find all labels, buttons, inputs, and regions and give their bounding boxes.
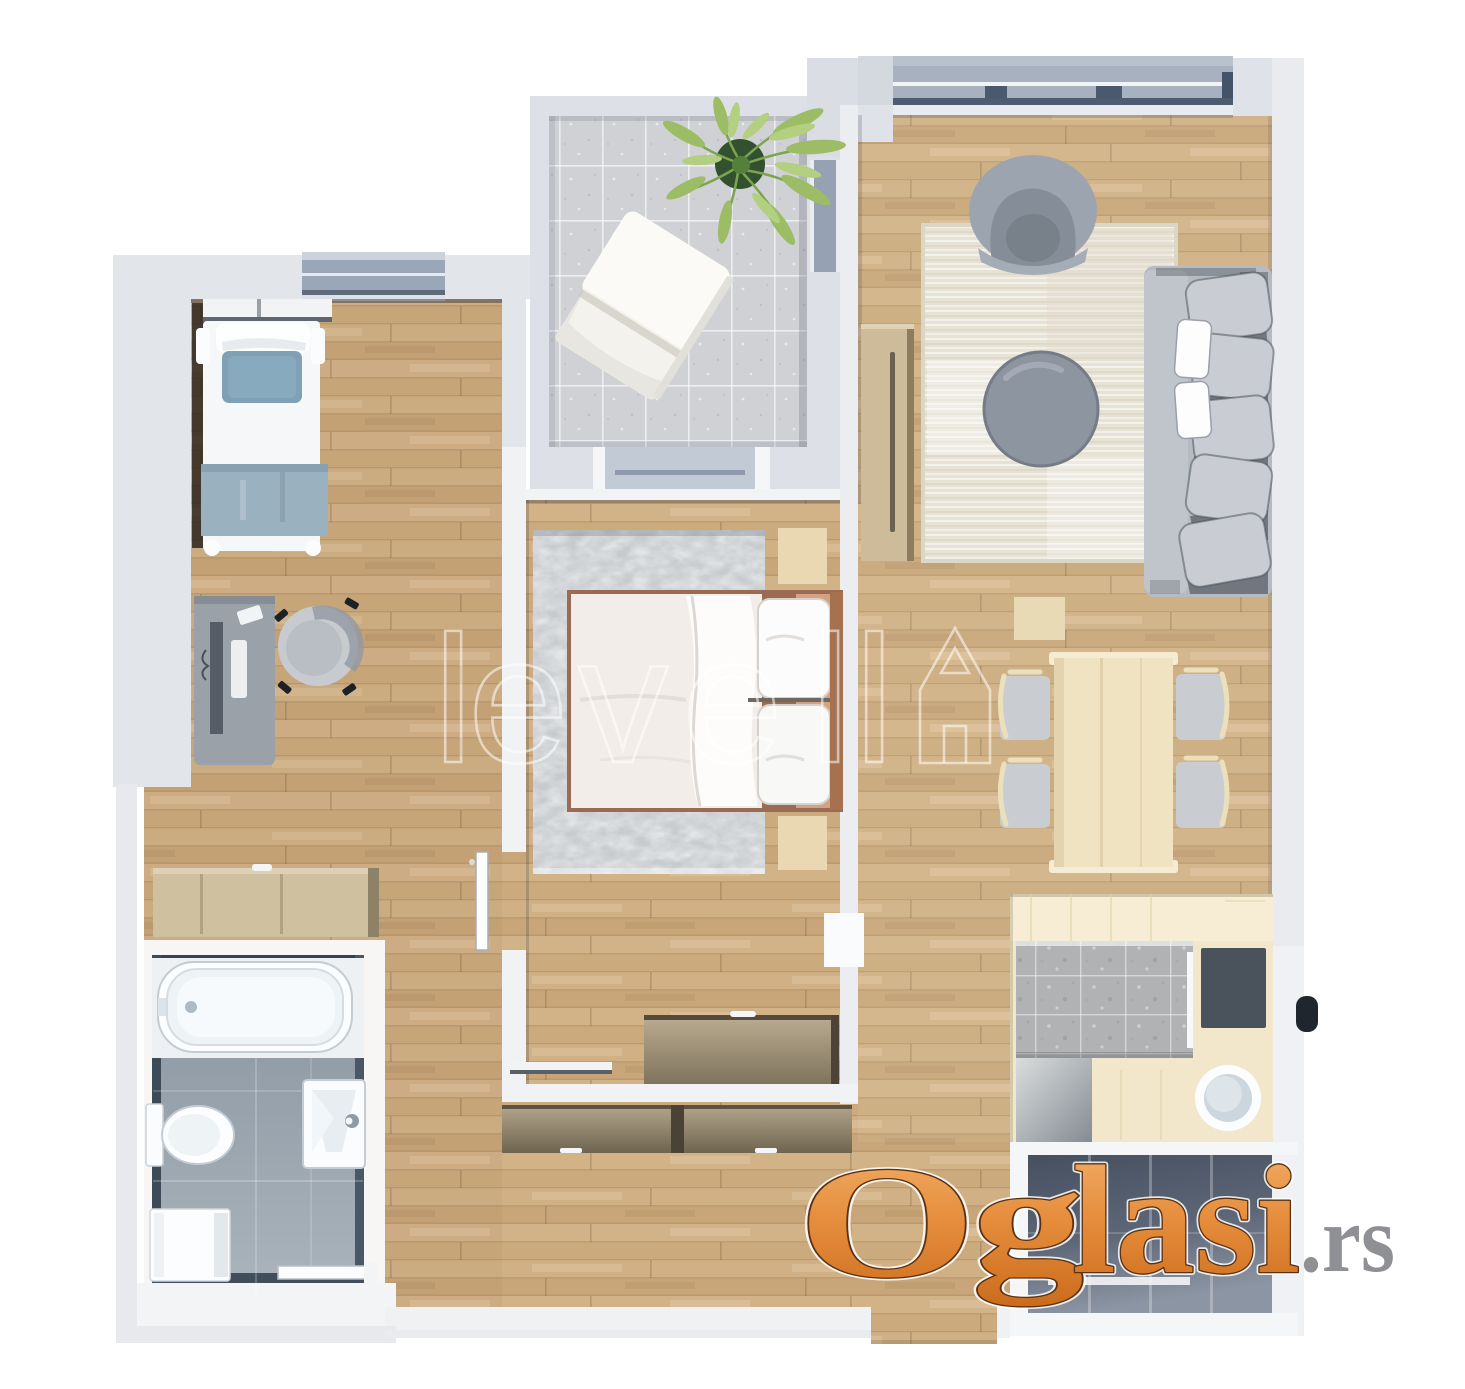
svg-text:l: l	[854, 599, 894, 801]
svg-text:.rs: .rs	[1300, 1186, 1395, 1292]
svg-text:l: l	[810, 599, 850, 801]
svg-text:e: e	[468, 599, 569, 801]
svg-text:e: e	[682, 599, 783, 801]
svg-text:O: O	[798, 1133, 976, 1311]
svg-text:v: v	[578, 599, 669, 801]
svg-text:lasi: lasi	[1072, 1134, 1300, 1306]
svg-text:g: g	[972, 1134, 1084, 1306]
